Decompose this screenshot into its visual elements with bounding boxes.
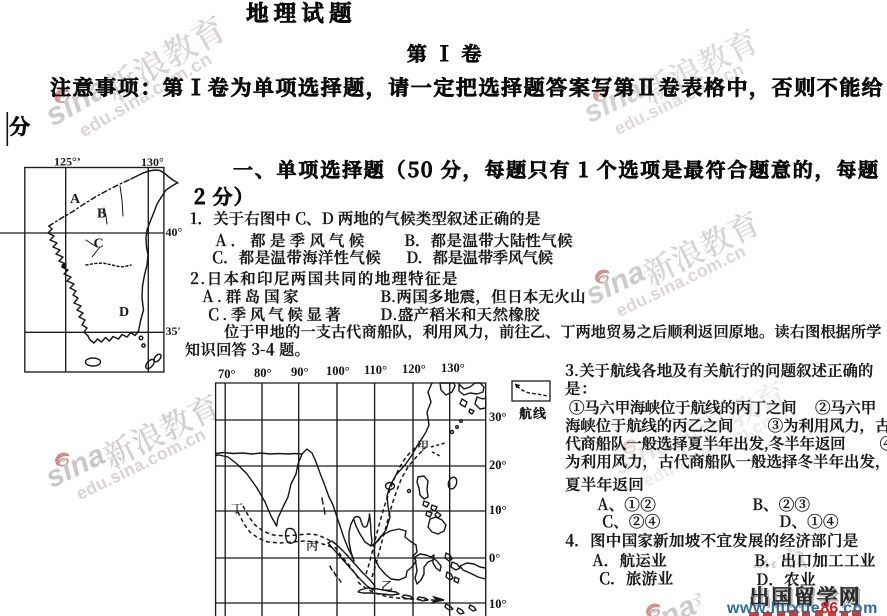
svg-text:乙: 乙	[381, 577, 393, 594]
svg-text:丁: 丁	[231, 500, 243, 517]
svg-text:30°: 30°	[489, 410, 507, 424]
svg-text:100°: 100°	[326, 364, 350, 378]
svg-text:130°: 130°	[141, 155, 164, 169]
svg-text:A: A	[70, 192, 81, 207]
svg-text:C: C	[94, 237, 104, 252]
svg-text:40°: 40°	[166, 225, 183, 239]
svg-text:120°: 120°	[402, 362, 426, 376]
svg-text:10°: 10°	[489, 597, 507, 611]
svg-text:110°: 110°	[364, 363, 387, 377]
svg-text:130°: 130°	[441, 361, 465, 375]
svg-text:丙: 丙	[306, 537, 318, 554]
svg-text:70°: 70°	[218, 367, 236, 381]
svg-text:D: D	[119, 305, 129, 320]
svg-text:125°’: 125°’	[54, 155, 81, 169]
svg-text:10°: 10°	[489, 503, 507, 517]
svg-text:B: B	[97, 207, 106, 222]
svg-text:20°: 20°	[489, 458, 507, 472]
svg-text:90°: 90°	[291, 365, 309, 379]
svg-text:0°: 0°	[489, 551, 500, 565]
svg-text:80°: 80°	[254, 366, 272, 380]
svg-text:航线: 航线	[519, 403, 547, 422]
svg-text:35′: 35′	[166, 324, 181, 338]
svg-text:甲: 甲	[417, 437, 429, 454]
